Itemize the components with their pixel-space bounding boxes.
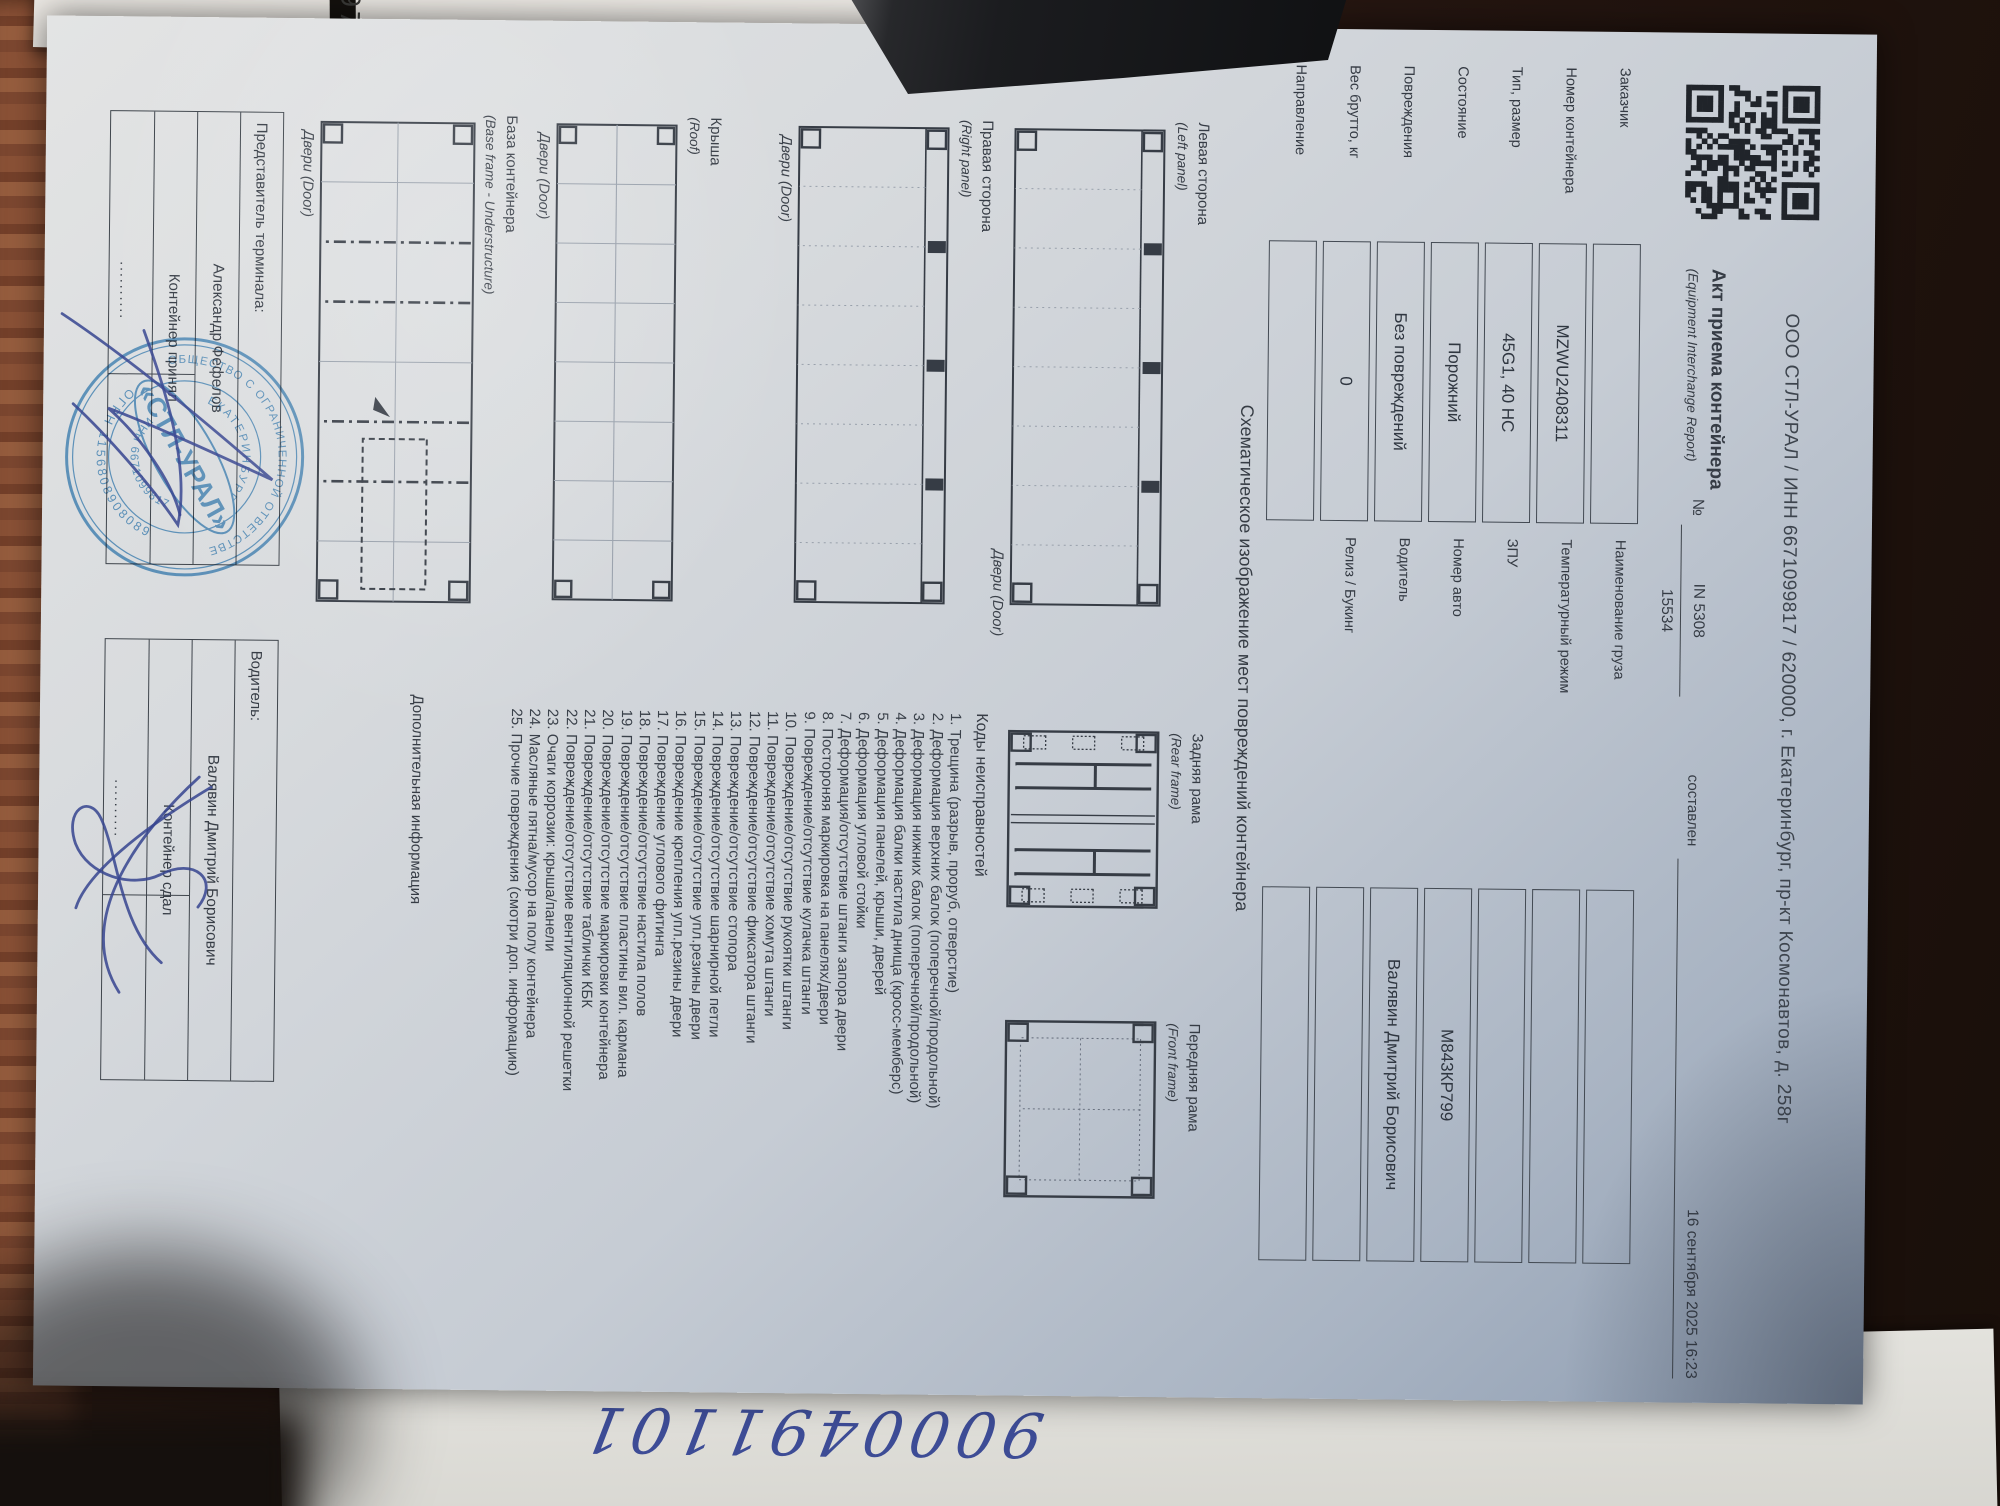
code-item-20: 20. Повреждение/отсутствие маркировки ко…	[595, 709, 616, 1080]
field-box-0-right	[1582, 890, 1634, 1264]
code-item-12: 12. Повреждение/отсутствие фиксатора шта…	[742, 711, 762, 1044]
field-label-3-left: Состояние	[1454, 66, 1471, 139]
form-grid: ЗаказчикНомер контейнераMZWU2408311Тип, …	[1863, 35, 1877, 1405]
code-item-17: 17. Повреждение углового фитинга	[652, 710, 672, 957]
number-underline	[1679, 525, 1682, 697]
code-item-24: 24. Масляные пятна/мусор на полу контейн…	[523, 709, 543, 1039]
code-item-23: 23. Очаги коррозии: крыша/панели	[542, 709, 562, 952]
code-item-6: 6. Деформация угловой стойки	[853, 712, 872, 929]
field-box-5-right	[1312, 887, 1364, 1261]
front-frame-title: Передняя рама	[1185, 1023, 1203, 1131]
company-header: ООО СТЛ-УРАЛ / ИНН 6671099817 / 620000, …	[1769, 34, 1805, 1404]
code-item-9: 9. Повреждение/отсутствие кулачка штанги	[797, 711, 817, 1014]
field-label-1-left: Номер контейнера	[1561, 67, 1578, 193]
eir-document-page: ООО СТЛ-УРАЛ / ИНН 6671099817 / 620000, …	[33, 15, 1877, 1404]
code-item-4: 4. Деформация балки настила днища (кросс…	[888, 712, 909, 1094]
composed-date: 16 сентября 2025 16:23	[1681, 869, 1704, 1379]
code-item-2: 2. Деформация верхних балок (поперечной/…	[925, 713, 946, 1109]
rear-frame-subtitle: (Rear frame)	[1168, 733, 1184, 810]
base-title: База контейнера	[502, 115, 520, 233]
field-label-1-right: Температурный режим	[1556, 539, 1574, 693]
field-label-6-left: Направление	[1292, 65, 1309, 156]
field-box-0-left	[1590, 244, 1641, 524]
field-label-3-right: Номер авто	[1449, 538, 1466, 617]
field-label-4-right: Водитель	[1395, 538, 1412, 602]
code-item-19: 19. Повреждение/отсутствие пластины вил.…	[614, 709, 635, 1077]
code-item-13: 13. Повреждение/отсутствие стопора	[725, 711, 745, 971]
right-panel-title: Правая сторона	[978, 120, 996, 232]
code-item-14: 14. Повреждение/отсутствие шарнирной пет…	[706, 710, 726, 1037]
field-label-5-right: Релиз / Букинг	[1341, 537, 1358, 633]
right-panel-diagram	[793, 125, 950, 605]
composed-label: составлен	[1684, 775, 1702, 847]
rear-frame-diagram	[1006, 730, 1160, 910]
code-item-18: 18. Повреждение/отсутствие настила полов	[633, 710, 653, 1017]
code-item-1: 1. Трещина (разрыв, проруб, отверстие)	[944, 713, 964, 993]
number-label: №	[1688, 499, 1706, 516]
field-label-5-left: Вес брутто, кг	[1346, 65, 1363, 159]
field-box-6-left	[1266, 240, 1317, 520]
roof-door-label: Двери (Door)	[535, 133, 552, 220]
number-sub-value: 15534	[1656, 524, 1676, 696]
corner-shadow-dark	[0, 1415, 300, 1506]
additional-info-label: Дополнительная информация	[406, 579, 428, 1019]
field-label-2-right: ЗПУ	[1504, 539, 1520, 568]
field-box-1-left: MZWU2408311	[1536, 243, 1587, 523]
field-label-0-right: Наименование груза	[1610, 540, 1627, 680]
roof-subtitle: (Roof)	[687, 117, 702, 155]
front-frame-subtitle: (Front frame)	[1165, 1023, 1181, 1102]
code-item-11: 11. Повреждение/отсутствие хомута штанги	[761, 711, 781, 1017]
codes-title: Коды неисправностей	[970, 713, 990, 877]
field-box-3-right: М843КР799	[1420, 888, 1472, 1262]
field-label-2-left: Тип, размер	[1508, 67, 1525, 148]
document-title: Акт приема контейнера	[1704, 269, 1728, 490]
right-panel-subtitle: (Right panel)	[958, 120, 974, 197]
base-door-label: Двери (Door)	[299, 130, 316, 217]
code-item-16: 16. Повреждение крепления упл.резины две…	[669, 710, 689, 1038]
rear-frame-title: Задняя рама	[1188, 733, 1206, 823]
field-box-4-right: Валявин Дмитрий Борисович	[1366, 887, 1418, 1261]
left-panel-diagram	[1009, 128, 1166, 608]
code-item-15: 15. Повреждение/отсутствие упл.резины дв…	[687, 710, 707, 1040]
schematic-section-title: Схематическое изображение мест поврежден…	[1227, 68, 1260, 1248]
left-panel-door-label: Двери (Door)	[989, 549, 1006, 636]
left-panel-title: Левая сторона	[1194, 122, 1212, 225]
code-item-22: 22. Повреждение/отсутствие вентиляционно…	[559, 709, 580, 1091]
number-value: IN 5308	[1688, 525, 1708, 697]
right-panel-door-label: Двери (Door)	[777, 135, 794, 222]
field-box-6-right	[1258, 886, 1310, 1260]
code-item-8: 8. Постороняя маркировка на панелях/двер…	[816, 712, 836, 1025]
code-item-21: 21. Повреждение/отсутствие таблички КБК	[578, 709, 598, 1008]
field-box-5-left: 0	[1320, 241, 1371, 521]
left-panel-subtitle: (Left panel)	[1174, 122, 1190, 190]
field-box-3-left: Порожний	[1428, 242, 1479, 522]
handwritten-number: 9000491101	[524, 1392, 1098, 1472]
driver-signature	[27, 755, 240, 1037]
base-subtitle: (Base frame - Understructure)	[481, 115, 498, 294]
composed-underline	[1672, 859, 1678, 1379]
field-box-2-right	[1474, 888, 1526, 1262]
front-frame-diagram	[1003, 1020, 1157, 1200]
field-label-0-left: Заказчик	[1616, 68, 1633, 128]
base-diagram	[315, 120, 476, 604]
codes-list: 1. Трещина (разрыв, проруб, отверстие)2.…	[1863, 35, 1877, 1405]
field-box-4-left: Без повреждений	[1374, 241, 1425, 521]
roof-diagram	[551, 123, 678, 602]
qr-code	[1685, 85, 1820, 220]
roof-title: Крыша	[707, 117, 725, 165]
terminal-signature	[21, 285, 314, 578]
field-box-1-right	[1528, 889, 1580, 1263]
field-box-2-left: 45G1, 40 HC	[1482, 243, 1533, 523]
field-label-4-left: Повреждения	[1400, 66, 1417, 159]
photo-scene: 9763 ЖАЙСКАЯ ОБЛ. 9000491101 ООО СТЛ-УРА…	[0, 0, 2000, 1506]
code-item-10: 10. Повреждение/отсутствие рукоятки штан…	[779, 711, 799, 1030]
document-title-en: (Equipment Interchange Report)	[1684, 269, 1701, 462]
code-item-5: 5. Деформация панелей, крыши, дверей	[871, 712, 891, 995]
code-item-7: 7. Деформация/отсутствие штанги запора д…	[834, 712, 855, 1051]
code-item-25: 25. Прочие повреждения (смотри доп. инфо…	[504, 708, 525, 1076]
